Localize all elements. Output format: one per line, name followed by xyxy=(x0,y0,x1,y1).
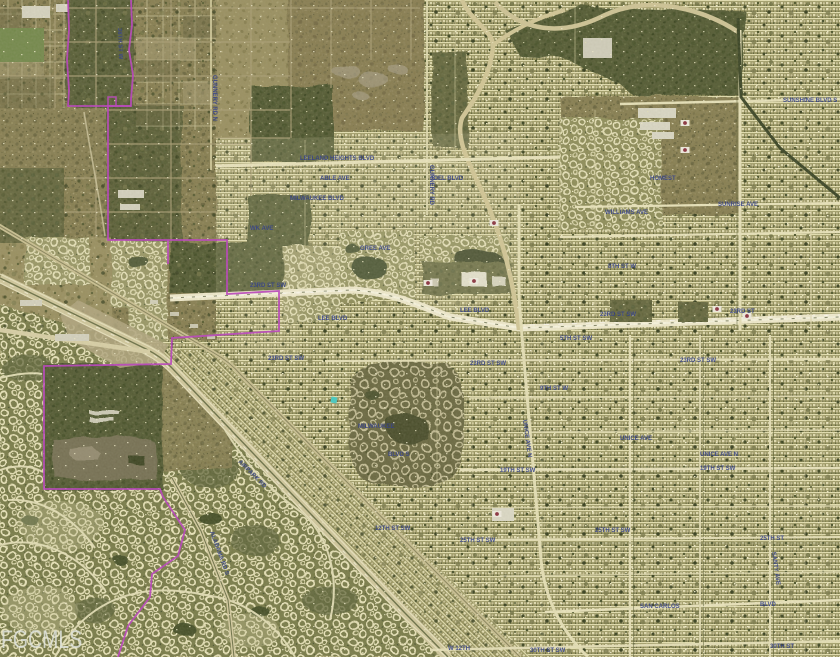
svg-text:FGCMLS: FGCMLS xyxy=(1,626,82,654)
